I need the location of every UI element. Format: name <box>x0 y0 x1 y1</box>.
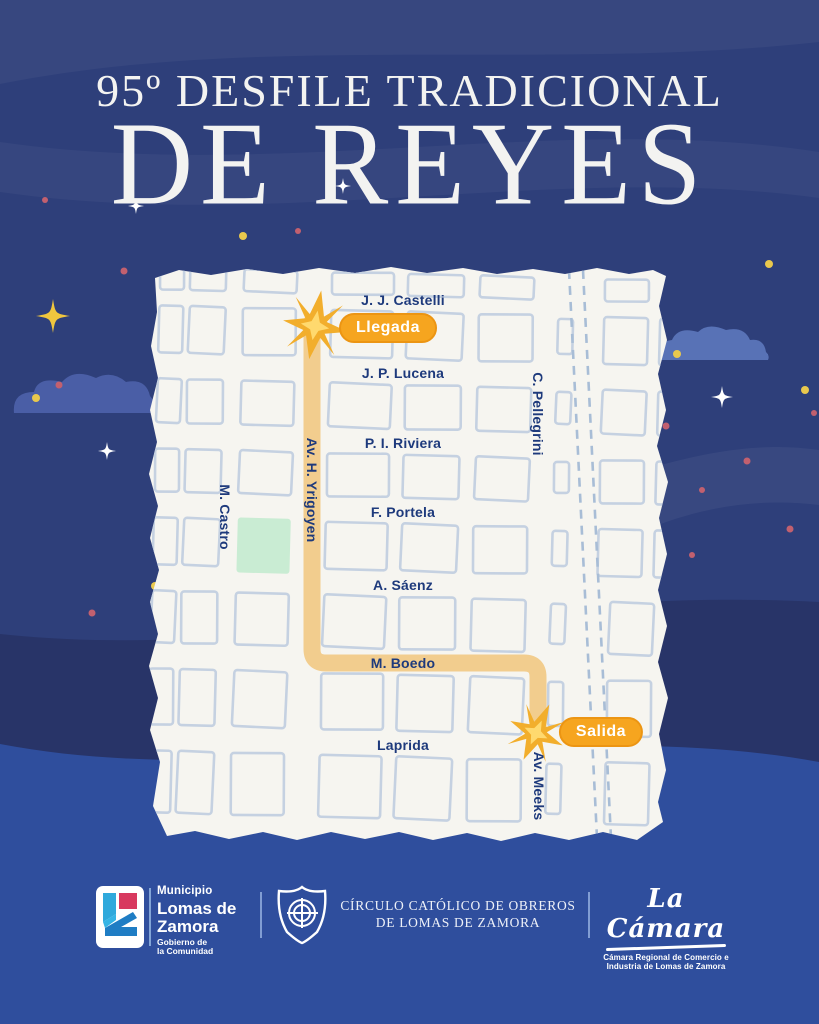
street-label-castelli: J. J. Castelli <box>361 292 445 308</box>
street-label-laprida: Laprida <box>377 737 429 753</box>
municipio-line2: Lomas de <box>157 900 236 917</box>
street-label-castro: M. Castro <box>217 484 233 550</box>
footer: Municipio Lomas de Zamora Gobierno de la… <box>0 878 819 1024</box>
poster: 95º DESFILE TRADICIONAL DE REYES <box>0 0 819 1024</box>
la-camara-script: La Cámara <box>596 884 736 944</box>
municipio-line1: Municipio <box>157 886 236 898</box>
street-label-saenz: A. Sáenz <box>373 577 433 593</box>
municipio-logo-divider <box>149 888 151 946</box>
footer-divider-1 <box>260 892 262 938</box>
street-label-riviera: P. I. Riviera <box>365 435 441 451</box>
la-camara-sub2: Industria de Lomas de Zamora <box>596 962 736 972</box>
street-label-pellegrini: C. Pellegrini <box>530 372 546 456</box>
map-paper <box>145 262 675 852</box>
municipio-text: Municipio Lomas de Zamora Gobierno de la… <box>157 886 236 956</box>
street-label-lucena: J. P. Lucena <box>362 365 444 381</box>
street-label-meeks: Av. Meeks <box>531 752 547 821</box>
municipio-sub1: Gobierno de <box>157 938 236 947</box>
route-map: J. J. Castelli J. P. Lucena P. I. Rivier… <box>145 262 675 852</box>
circulo-catolico-text: CÍRCULO CATÓLICO DE OBREROS DE LOMAS DE … <box>340 897 576 931</box>
circulo-line2: DE LOMAS DE ZAMORA <box>340 914 576 931</box>
la-camara-underline <box>606 944 726 951</box>
departure-badge: Salida <box>559 717 643 747</box>
street-label-portela: F. Portela <box>371 504 435 520</box>
arrival-badge: Llegada <box>339 313 437 343</box>
poster-title-line2: DE REYES <box>0 95 819 232</box>
municipio-line3: Zamora <box>157 918 236 935</box>
la-camara-logo: La Cámara Cámara Regional de Comercio e … <box>596 884 736 972</box>
la-camara-sub1: Cámara Regional de Comercio e <box>596 953 736 963</box>
street-label-boedo: M. Boedo <box>371 655 436 671</box>
footer-divider-2 <box>588 892 590 938</box>
circulo-line1: CÍRCULO CATÓLICO DE OBREROS <box>340 897 576 914</box>
municipio-sub2: la Comunidad <box>157 947 236 956</box>
municipio-lz-logo <box>96 886 144 948</box>
street-label-yrigoyen: Av. H. Yrigoyen <box>304 438 320 543</box>
circulo-catolico-shield-icon <box>277 885 327 945</box>
